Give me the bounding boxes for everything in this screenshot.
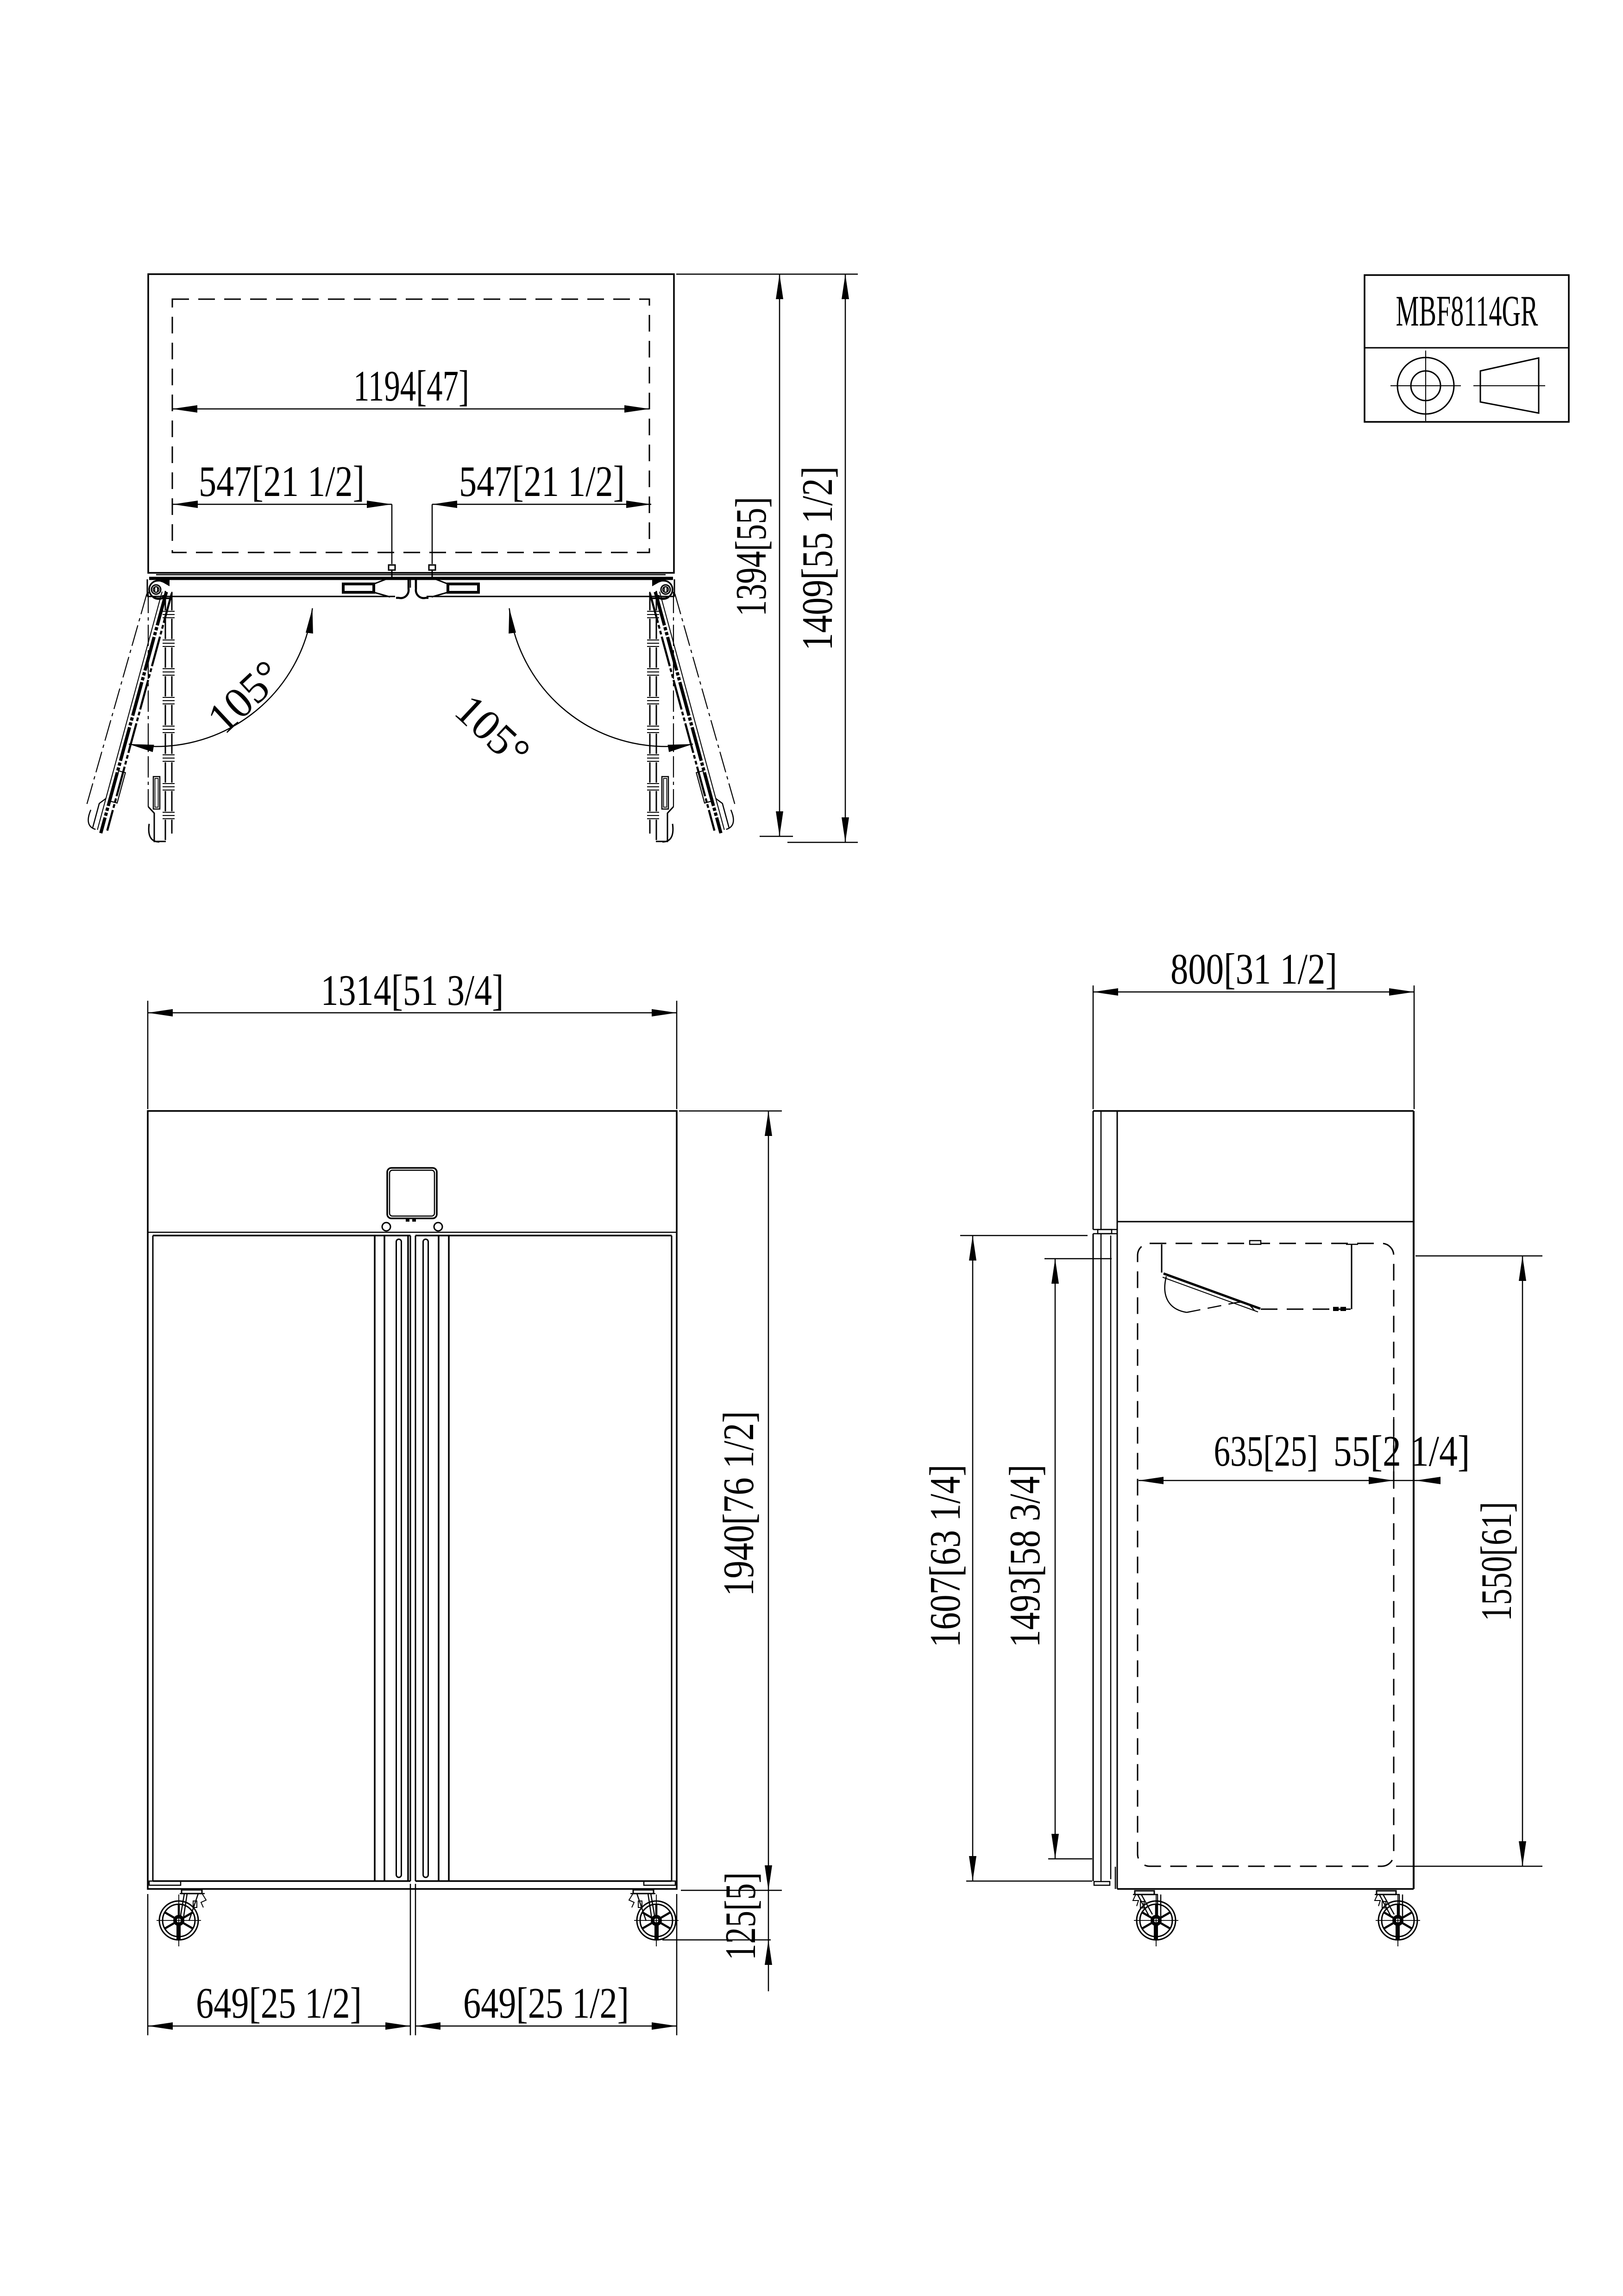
svg-text:55[2 1/4]: 55[2 1/4] xyxy=(1334,1427,1470,1475)
svg-text:547[21 1/2]: 547[21 1/2] xyxy=(459,458,625,506)
svg-text:1409[55 1/2]: 1409[55 1/2] xyxy=(793,466,842,651)
svg-text:635[25]: 635[25] xyxy=(1214,1427,1318,1475)
svg-text:1550[61]: 1550[61] xyxy=(1472,1502,1521,1621)
svg-text:1394[55]: 1394[55] xyxy=(727,497,775,616)
svg-text:1493[58 3/4]: 1493[58 3/4] xyxy=(1001,1465,1049,1648)
svg-text:649[25 1/2]: 649[25 1/2] xyxy=(196,1979,362,2027)
svg-text:MBF8114GR: MBF8114GR xyxy=(1396,287,1538,335)
svg-text:1940[76 1/2]: 1940[76 1/2] xyxy=(715,1411,763,1596)
svg-text:125[5]: 125[5] xyxy=(717,1872,765,1960)
svg-text:649[25 1/2]: 649[25 1/2] xyxy=(463,1979,629,2027)
svg-text:1314[51 3/4]: 1314[51 3/4] xyxy=(321,966,504,1015)
svg-text:800[31 1/2]: 800[31 1/2] xyxy=(1170,945,1337,993)
svg-text:547[21 1/2]: 547[21 1/2] xyxy=(199,458,365,506)
svg-text:1194[47]: 1194[47] xyxy=(353,362,469,410)
svg-text:1607[63 1/4]: 1607[63 1/4] xyxy=(921,1465,969,1648)
